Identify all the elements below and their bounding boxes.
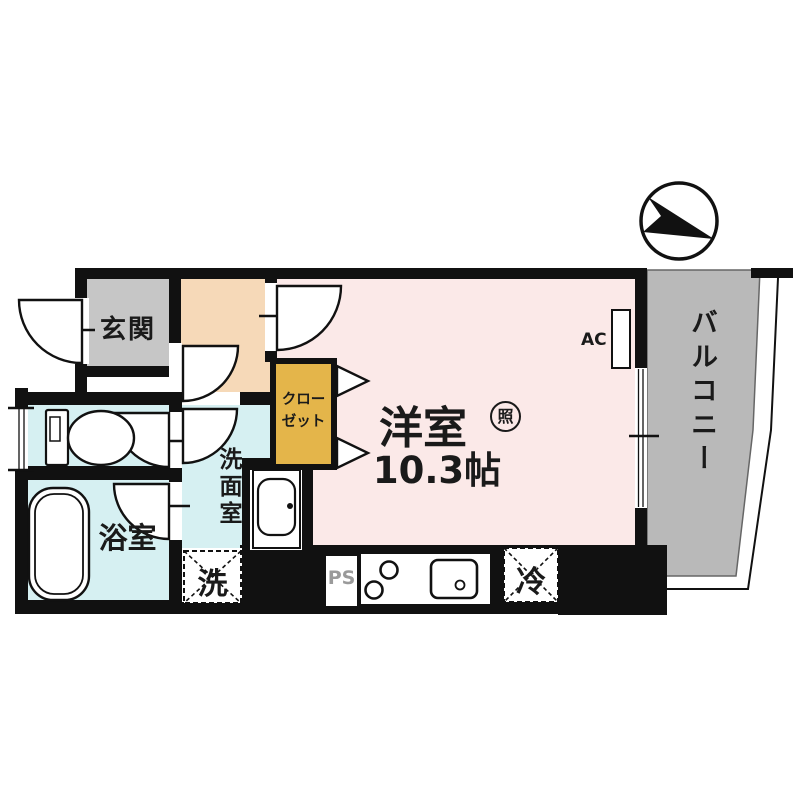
toilet-bowl-icon [68,411,134,465]
genkan-label: 玄関 [86,309,170,346]
balcony-label: バルコニー [682,308,721,588]
ac-label: AC [581,330,607,350]
air-conditioner-icon [612,310,630,368]
stove-burner-icon [366,582,383,599]
wall-balcony-top [751,268,793,278]
floor-plan-canvas: 玄関 洋室 照 10.3帖 AC バルコニー 浴室 洗面室 クロー ゼット 洗 … [0,0,800,800]
basin-faucet-dot [287,503,293,509]
wall-bath-top [15,466,181,480]
genkan-hall-door-gap [169,343,182,392]
bathroom-label: 浴室 [85,515,170,557]
main-room-size-label: 10.3帖 [352,440,522,494]
light-fixture-badge: 照 [490,401,521,432]
closet-label-line1: クロー [282,392,326,408]
closet-label: クロー ゼット [275,389,332,434]
washer-label: 洗 [184,559,241,603]
bathroom-door-gap [169,482,182,540]
kitchen-sink-icon [431,560,477,598]
stove-burner-icon [381,562,398,579]
sink-drain-icon [456,581,465,590]
wall-genkan-bottom [75,366,181,377]
bathtub-icon [29,488,89,600]
balcony-window-gap [635,368,647,508]
toilet-tank-detail [50,417,60,441]
fridge-label: 冷 [504,557,558,601]
washroom-label: 洗面室 [211,447,245,562]
entrance-door-swing [19,300,82,363]
wall-toilet-top [15,392,181,405]
left-window-gap [15,408,28,470]
north-arrow-icon [641,183,717,259]
wall-top [75,268,647,279]
pipe-space-label: PS [326,567,357,589]
closet-label-line2: ゼット [282,414,326,430]
